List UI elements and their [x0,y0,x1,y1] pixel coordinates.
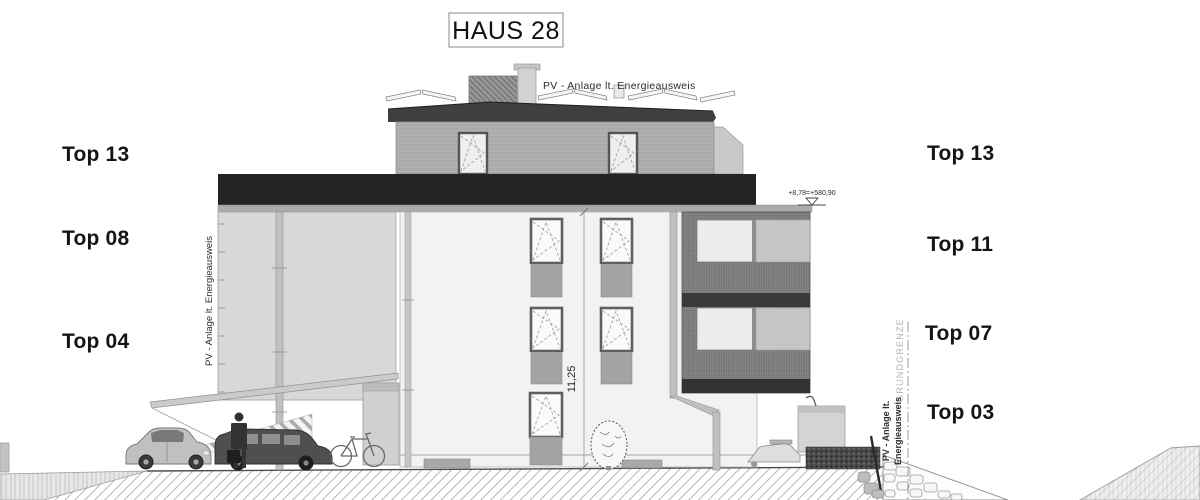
loggia-window [697,220,753,262]
hedge [806,447,880,469]
utility-box-top [798,406,845,413]
chair-wheel [751,461,757,467]
unit-label-right-top11: Top 11 [927,233,993,256]
loggia-window [697,308,753,350]
loggia-panel [756,308,810,350]
left-wall-edge [0,443,9,472]
unit-label-right-top13: Top 13 [927,142,994,165]
pv-annotation-left-vertical: PV - Anlage lt. Energieausweis [204,236,215,366]
pv-annotation-right-line1: PV - Anlage lt. [881,401,891,461]
unit-label-left-top08: Top 08 [62,227,129,250]
table [770,440,792,444]
grundgrenze-label: GRUNDGRENZE [895,318,905,402]
loggia-panel [756,220,810,262]
pv-annotation-top: PV - Anlage lt. Energieausweis [543,80,696,92]
window [601,219,632,263]
ground-hatch [44,467,883,500]
elevation-sheet: HAUS 28 PV - Anlage lt. Energieausweis T… [0,0,1200,500]
balcony-band [682,379,810,393]
loggia-post [752,220,756,262]
headlight [203,451,209,455]
planter [622,460,662,468]
penthouse-window [459,133,487,174]
balcony-block [682,212,810,393]
window [531,219,562,263]
bush-trunk [606,466,611,470]
spandrel-panel [531,353,562,384]
unit-label-right-top03: Top 03 [927,401,994,424]
level-mark-text: +8,78=+580,90 [788,190,835,197]
spandrel-panel [531,265,562,297]
planter [424,459,470,468]
bike-shed [363,383,399,465]
title-block: HAUS 28 [449,13,563,47]
door-panel [530,437,562,465]
penthouse-window [609,133,637,174]
penthouse [396,122,714,174]
loggia-post [752,308,756,350]
window [601,308,632,351]
drawing-title: HAUS 28 [452,17,560,45]
band-edge-strip [218,205,812,212]
downpipe [405,212,411,467]
window [531,308,562,351]
spandrel-panel [601,353,632,384]
unit-label-left-top04: Top 04 [62,330,129,353]
spandrel-panel [601,265,632,297]
pv-annotation-right-line2: Energieausweis [893,397,903,465]
briefcase [227,450,240,463]
unit-label-right-top07: Top 07 [925,322,992,345]
height-dimension-text: 11,25 [566,366,578,393]
unit-label-left-top13: Top 13 [62,143,129,166]
attic-band [218,174,756,205]
balcony-band [682,293,810,307]
elevation-drawing: HAUS 28 PV - Anlage lt. Energieausweis T… [0,0,1200,500]
door-window [530,393,562,437]
